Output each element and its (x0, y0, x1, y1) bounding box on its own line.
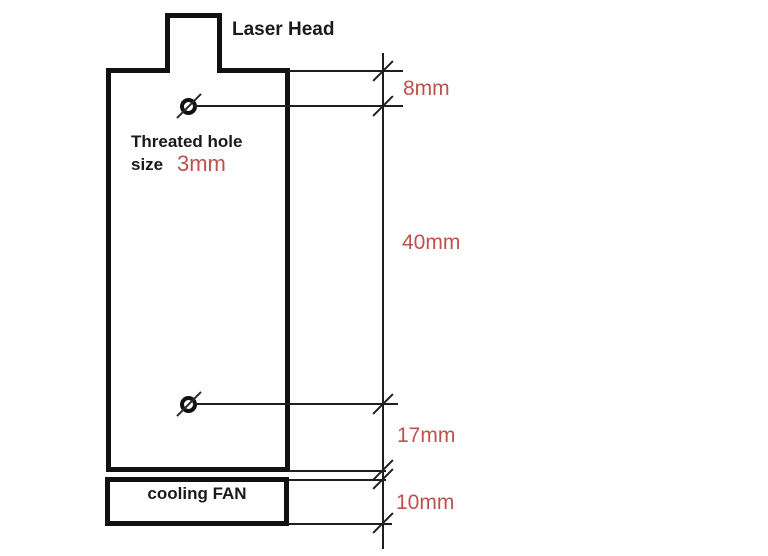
laser-head-label: Laser Head (232, 20, 334, 41)
threaded-hole-note-line2: size (131, 156, 163, 175)
dimension-line-vertical (382, 53, 384, 549)
laser-head-dimension-diagram: Laser Head Threated hole size 3mm coolin… (0, 0, 768, 556)
dimension-label-10mm: 10mm (396, 492, 454, 513)
dimension-label-8mm: 8mm (403, 78, 450, 99)
cooling-fan-label: cooling FAN (105, 485, 289, 504)
dimension-label-17mm: 17mm (397, 425, 455, 446)
dimension-label-40mm: 40mm (402, 232, 460, 253)
extension-line-fan-bottom (289, 523, 392, 525)
leader-line-hole-top (193, 105, 403, 107)
extension-line-body-bottom (289, 470, 386, 472)
laser-head-nub-outline (165, 13, 222, 73)
leader-line-hole-bottom (193, 403, 398, 405)
threaded-hole-note-line1: Threated hole (131, 133, 242, 152)
threaded-hole-size-value: 3mm (177, 153, 226, 175)
extension-line-fan-top (289, 479, 386, 481)
extension-line-body-top (288, 70, 403, 72)
laser-module-body-outline (106, 68, 290, 472)
